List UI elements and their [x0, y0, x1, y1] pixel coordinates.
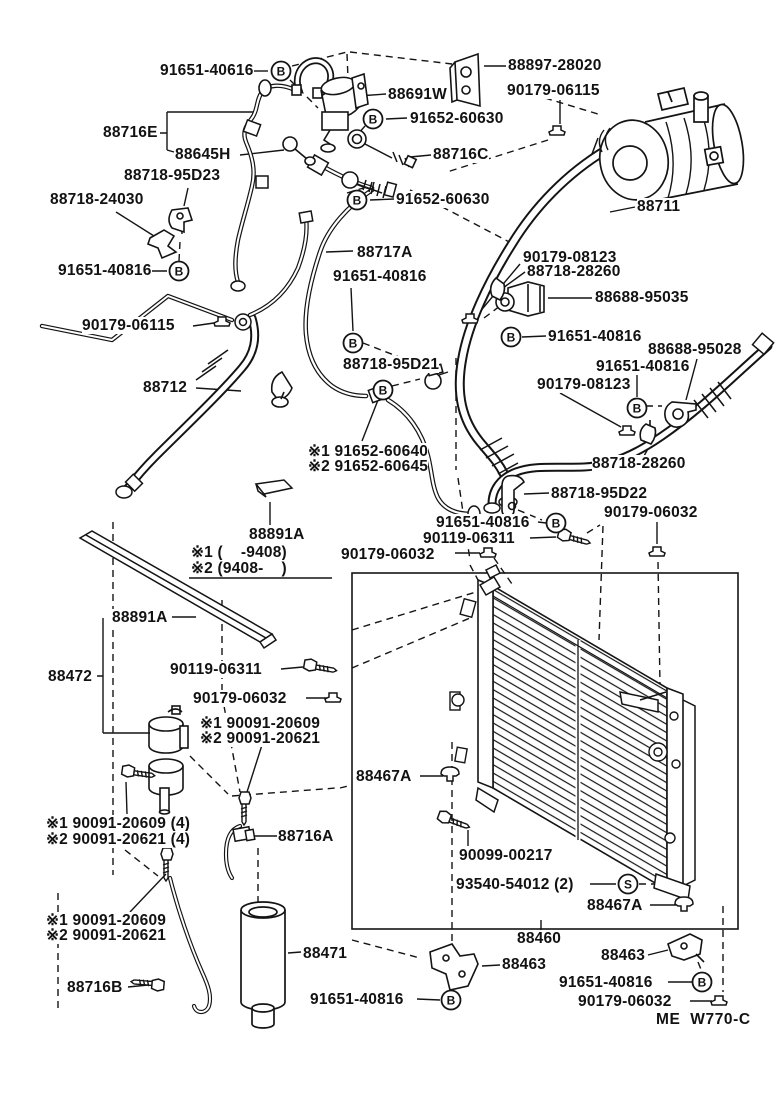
seal-strip-88891A: [80, 480, 292, 648]
bracket-88718-28260-upper: [491, 278, 505, 300]
union-fittings-91652: [342, 130, 416, 193]
svg-text:B: B: [552, 517, 561, 531]
nut-90179-08123: [619, 426, 635, 435]
fitting-88716B: [130, 977, 164, 992]
receiver-assembly-88472: [149, 706, 188, 814]
svg-text:B: B: [379, 384, 388, 398]
compressor: [594, 88, 749, 205]
bracket-88897-28020: [450, 54, 480, 106]
svg-text:B: B: [353, 194, 362, 208]
svg-text:B: B: [633, 402, 642, 416]
nut-90179-06032: [325, 693, 341, 702]
bolt-90119-06311: [303, 658, 338, 676]
grommet-88467A: [675, 897, 693, 911]
nut-90179-06032: [649, 547, 665, 556]
fastener-marker-b: B: [547, 514, 566, 533]
fastener-marker-b: B: [628, 399, 647, 418]
svg-text:B: B: [369, 113, 378, 127]
svg-text:B: B: [277, 65, 286, 79]
svg-text:B: B: [698, 976, 707, 990]
bracket-88718-95D23: [169, 208, 192, 232]
svg-text:B: B: [349, 337, 358, 351]
fastener-marker-b: B: [442, 991, 461, 1010]
bolt-90091: [239, 792, 251, 825]
nut-90179-06115: [549, 126, 565, 135]
fastener-marker-b: B: [344, 334, 363, 353]
fasteners: [121, 126, 727, 1005]
fastener-marker-b: B: [502, 328, 521, 347]
fastener-marker-b: B: [272, 62, 291, 81]
fastener-marker-b: B: [170, 262, 189, 281]
parts-diagram-page: BBBBBBBBBBBS ME W770-C 91651-4061688691W…: [0, 0, 776, 1096]
fastener-marker-b: B: [693, 973, 712, 992]
bolt-90099-00217: [437, 809, 472, 832]
bolt-90091: [161, 848, 173, 881]
nut-90179-06032: [480, 548, 496, 557]
brackets-and-clips: [148, 208, 696, 516]
receiver-drier-88471: [241, 902, 285, 1028]
fastener-marker-b: B: [364, 110, 383, 129]
grommet-88467A: [441, 767, 459, 781]
svg-text:B: B: [507, 331, 516, 345]
bracket-88718-28260-lower: [640, 420, 655, 444]
fastener-marker-b: B: [348, 191, 367, 210]
lower-brackets-88463: [430, 934, 704, 990]
fastener-marker-b: B: [374, 381, 393, 400]
svg-text:S: S: [624, 878, 632, 892]
svg-text:B: B: [175, 265, 184, 279]
svg-text:B: B: [447, 994, 456, 1008]
fastener-marker-s: S: [619, 875, 638, 894]
nut-90179-06032: [711, 996, 727, 1005]
diagram-line-art: BBBBBBBBBBBS: [0, 0, 776, 1096]
